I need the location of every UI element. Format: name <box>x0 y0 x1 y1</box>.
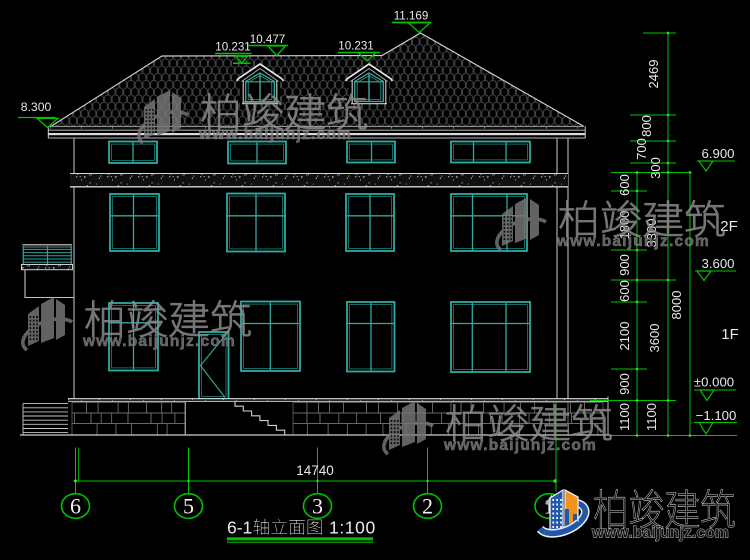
svg-text:600: 600 <box>617 280 632 302</box>
svg-text:6: 6 <box>70 494 81 519</box>
svg-text:800: 800 <box>639 115 654 137</box>
svg-text:8000: 8000 <box>669 291 684 320</box>
svg-text:600: 600 <box>617 174 632 196</box>
svg-text:2100: 2100 <box>617 322 632 351</box>
svg-text:3.600: 3.600 <box>701 256 734 271</box>
svg-text:±0.000: ±0.000 <box>694 375 734 390</box>
svg-text:8.300: 8.300 <box>21 100 52 114</box>
svg-text:1F: 1F <box>721 326 739 343</box>
svg-text:900: 900 <box>617 373 632 395</box>
svg-text:10.231: 10.231 <box>338 40 373 53</box>
svg-text:700: 700 <box>634 138 649 160</box>
svg-text:6.900: 6.900 <box>701 146 734 161</box>
svg-text:1100: 1100 <box>644 403 659 431</box>
svg-text:900: 900 <box>617 254 632 276</box>
svg-text:2469: 2469 <box>646 60 661 89</box>
svg-text:11.169: 11.169 <box>394 10 429 23</box>
svg-text:3600: 3600 <box>647 324 662 353</box>
svg-text:www.baijunjz.com: www.baijunjz.com <box>591 525 729 542</box>
svg-text:6-1: 6-1 <box>227 518 252 538</box>
svg-text:www.baijunjz.com: www.baijunjz.com <box>82 333 236 350</box>
svg-text:1:100: 1:100 <box>329 518 376 538</box>
svg-text:www.baijunjz.com: www.baijunjz.com <box>198 126 352 143</box>
svg-text:300: 300 <box>648 157 663 179</box>
svg-text:3: 3 <box>312 494 323 519</box>
svg-text:10.231: 10.231 <box>215 41 250 54</box>
svg-text:−1.100: −1.100 <box>696 408 737 423</box>
svg-text:10.477: 10.477 <box>250 33 285 46</box>
svg-text:1100: 1100 <box>617 403 632 431</box>
svg-text:www.baijunjz.com: www.baijunjz.com <box>556 233 710 250</box>
svg-text:14740: 14740 <box>296 463 334 478</box>
svg-text:2: 2 <box>422 494 433 519</box>
svg-text:5: 5 <box>183 494 194 519</box>
svg-text:www.baijunjz.com: www.baijunjz.com <box>443 437 597 454</box>
